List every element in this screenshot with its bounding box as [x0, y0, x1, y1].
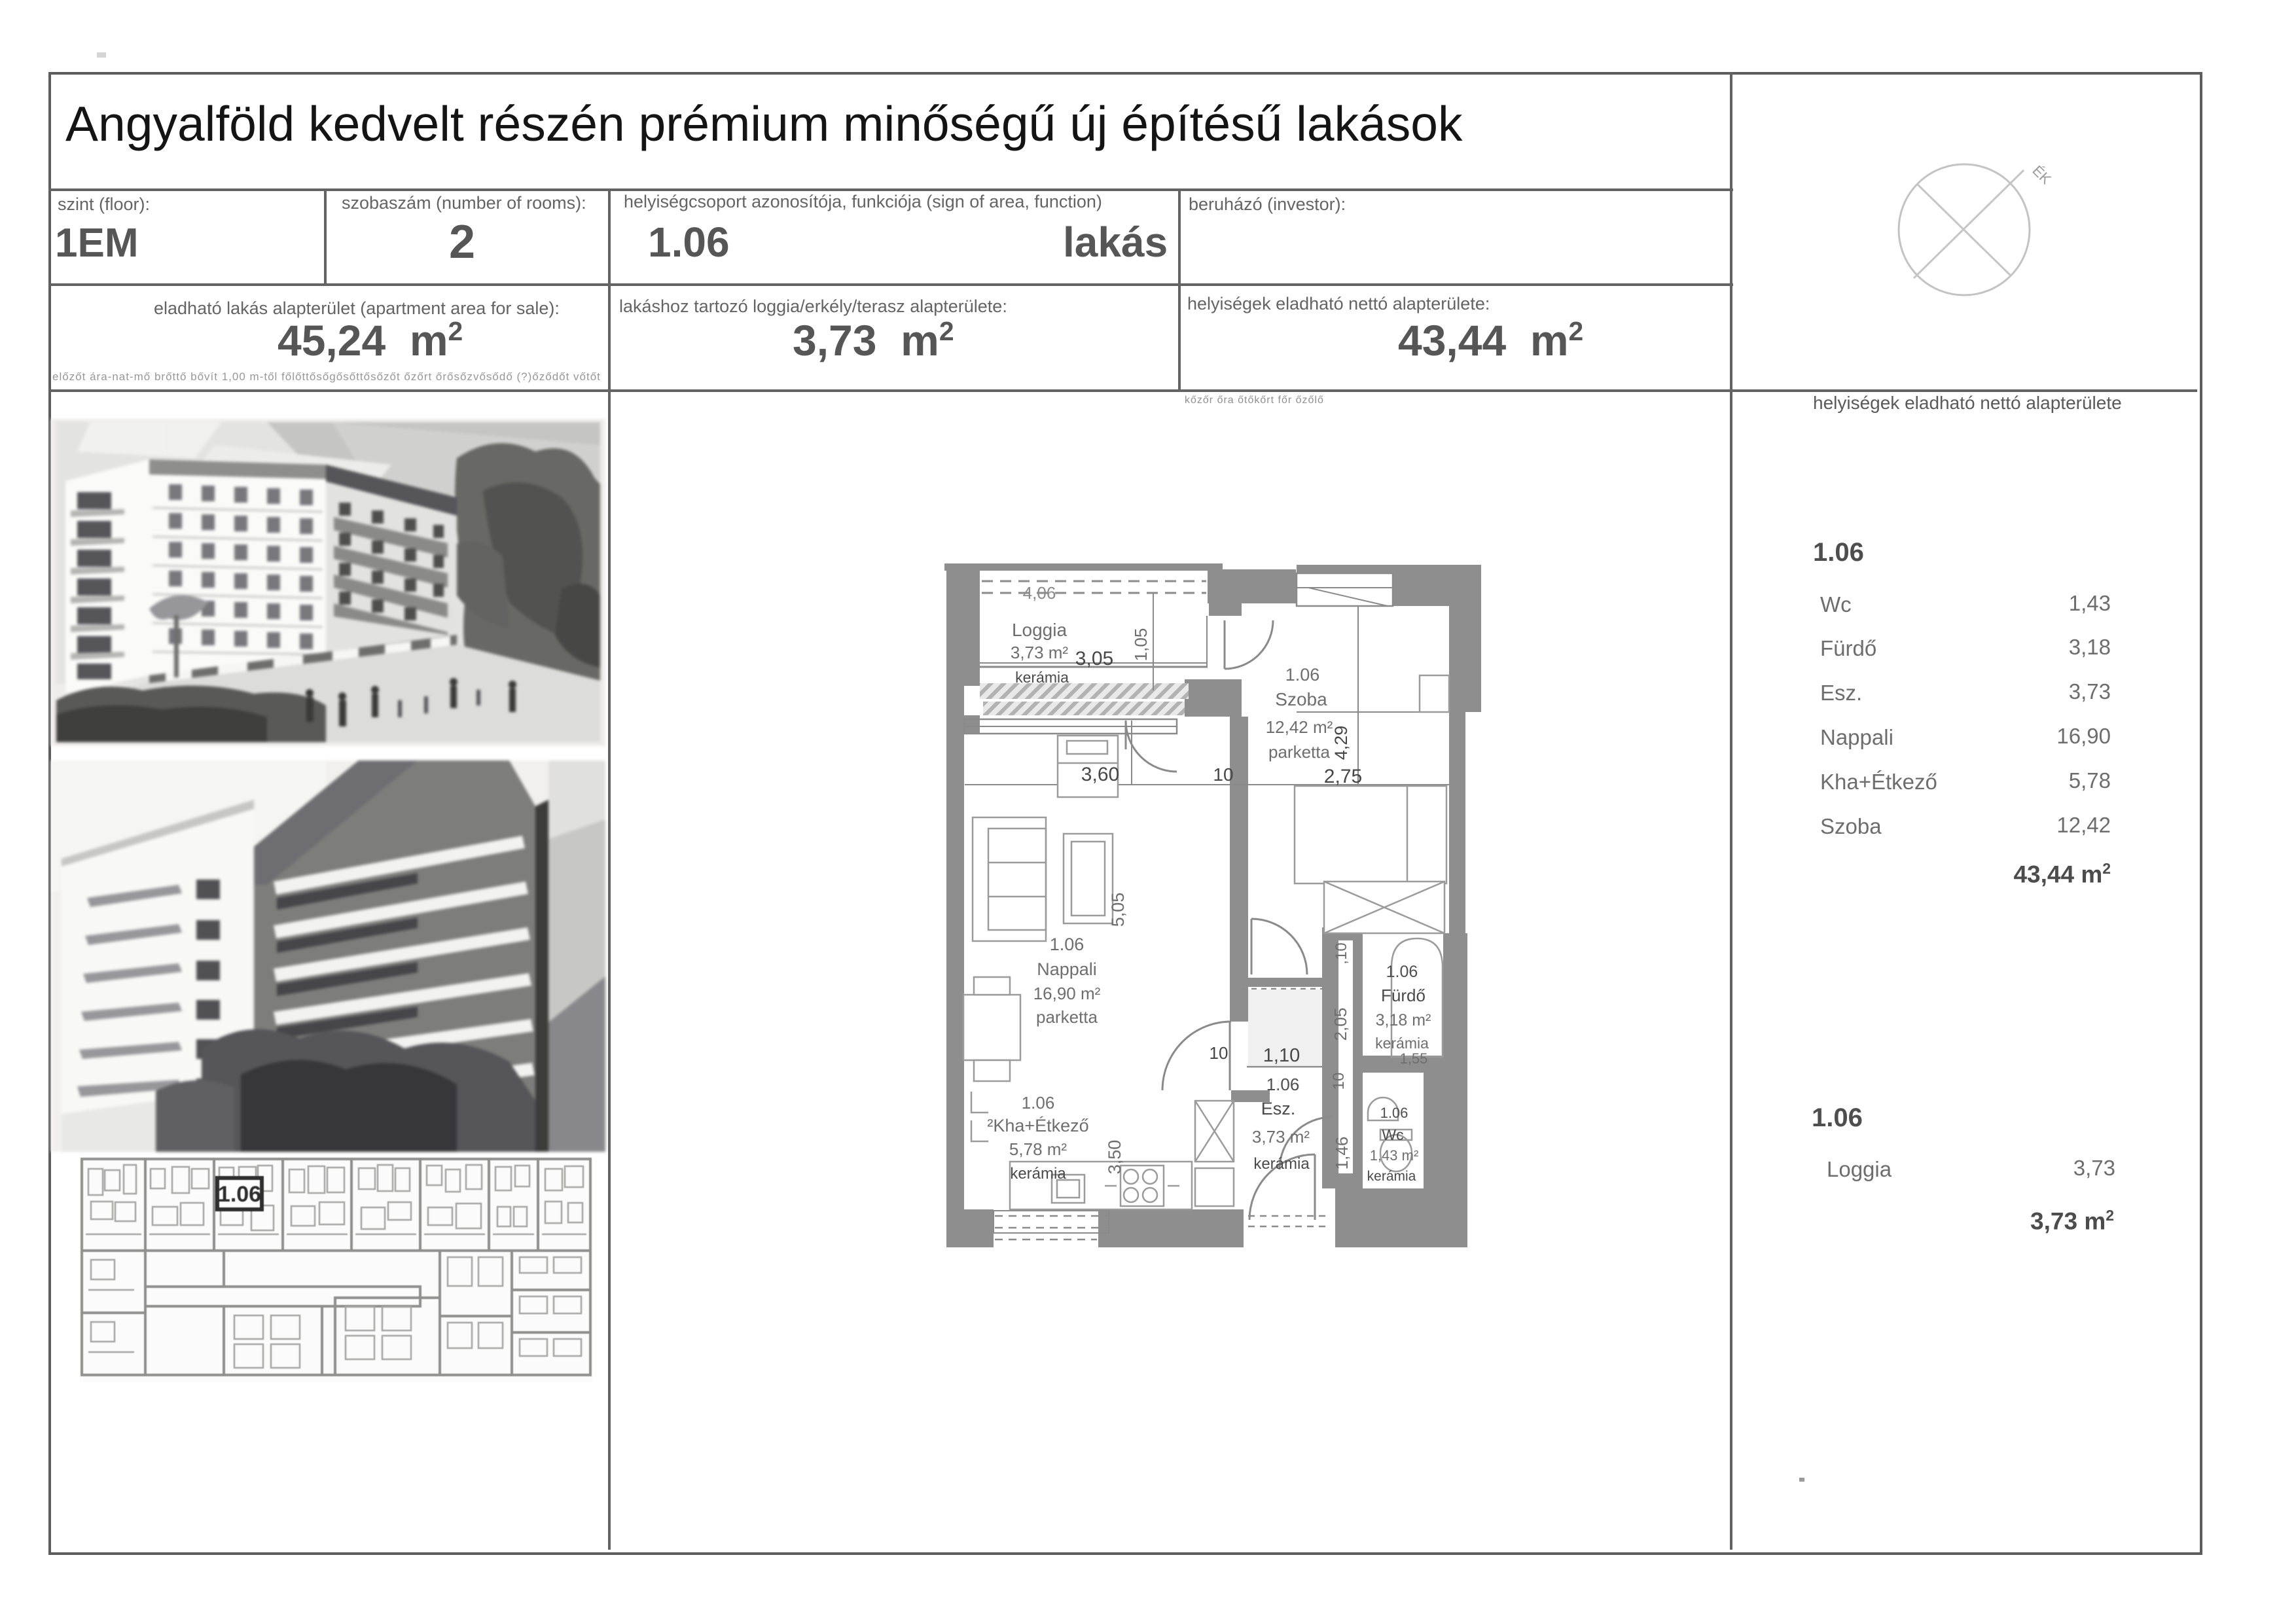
- svg-text:1.06: 1.06: [1022, 1093, 1055, 1113]
- svg-text:Wc: Wc: [1382, 1126, 1403, 1143]
- svg-text:4,29: 4,29: [1331, 726, 1351, 760]
- svg-text:5,78 m²: 5,78 m²: [1009, 1139, 1067, 1159]
- svg-text:3,05: 3,05: [1075, 648, 1113, 669]
- svg-text:Fürdő: Fürdő: [1381, 986, 1426, 1005]
- svg-text:ÉK: ÉK: [2029, 162, 2054, 188]
- svg-text:1,43 m²: 1,43 m²: [1370, 1147, 1419, 1164]
- svg-text:1.06: 1.06: [1386, 963, 1418, 981]
- svg-text:3,73 m²: 3,73 m²: [1252, 1127, 1310, 1147]
- svg-text:2,05: 2,05: [1331, 1008, 1350, 1041]
- svg-text:Nappali: Nappali: [1037, 959, 1097, 979]
- svg-text:kerámia: kerámia: [1367, 1169, 1416, 1184]
- svg-text:4,06: 4,06: [1023, 583, 1056, 603]
- svg-text:12,42 m²: 12,42 m²: [1266, 717, 1333, 737]
- svg-text:parketta: parketta: [1036, 1007, 1098, 1027]
- svg-text:1,05: 1,05: [1131, 628, 1151, 662]
- svg-text:3,18 m²: 3,18 m²: [1376, 1011, 1431, 1029]
- svg-text:Esz.: Esz.: [1261, 1099, 1296, 1118]
- svg-text:10: 10: [1210, 1043, 1229, 1063]
- svg-text:1.06: 1.06: [1050, 935, 1085, 954]
- svg-text:1.06: 1.06: [218, 1182, 261, 1207]
- svg-text:kerámia: kerámia: [1010, 1165, 1066, 1183]
- svg-text:parketta: parketta: [1268, 742, 1330, 762]
- svg-text:1,55: 1,55: [1400, 1050, 1428, 1067]
- svg-text:²Kha+Étkező: ²Kha+Étkező: [987, 1116, 1088, 1135]
- svg-text:1.06: 1.06: [1266, 1075, 1300, 1094]
- svg-text:16,90 m²: 16,90 m²: [1033, 984, 1101, 1003]
- svg-text:5,05: 5,05: [1108, 893, 1128, 927]
- svg-text:2,75: 2,75: [1324, 766, 1362, 787]
- svg-text:1.06: 1.06: [1285, 665, 1320, 685]
- svg-text:1,46: 1,46: [1332, 1137, 1352, 1170]
- svg-text:kerámia: kerámia: [1253, 1155, 1310, 1173]
- svg-text:3,73 m²: 3,73 m²: [1011, 643, 1068, 662]
- svg-text:kerámia: kerámia: [1375, 1035, 1429, 1052]
- svg-text:3,50: 3,50: [1105, 1140, 1124, 1175]
- svg-text:10: 10: [1330, 1073, 1348, 1090]
- svg-text:10: 10: [1213, 764, 1233, 785]
- svg-text:3,60: 3,60: [1081, 764, 1119, 785]
- svg-text:Loggia: Loggia: [1012, 620, 1067, 640]
- svg-text:1.06: 1.06: [1380, 1105, 1408, 1121]
- svg-text:,10: ,10: [1333, 942, 1350, 964]
- svg-text:kerámia: kerámia: [1015, 669, 1069, 686]
- svg-text:Szoba: Szoba: [1275, 689, 1327, 709]
- svg-text:1,10: 1,10: [1263, 1045, 1300, 1066]
